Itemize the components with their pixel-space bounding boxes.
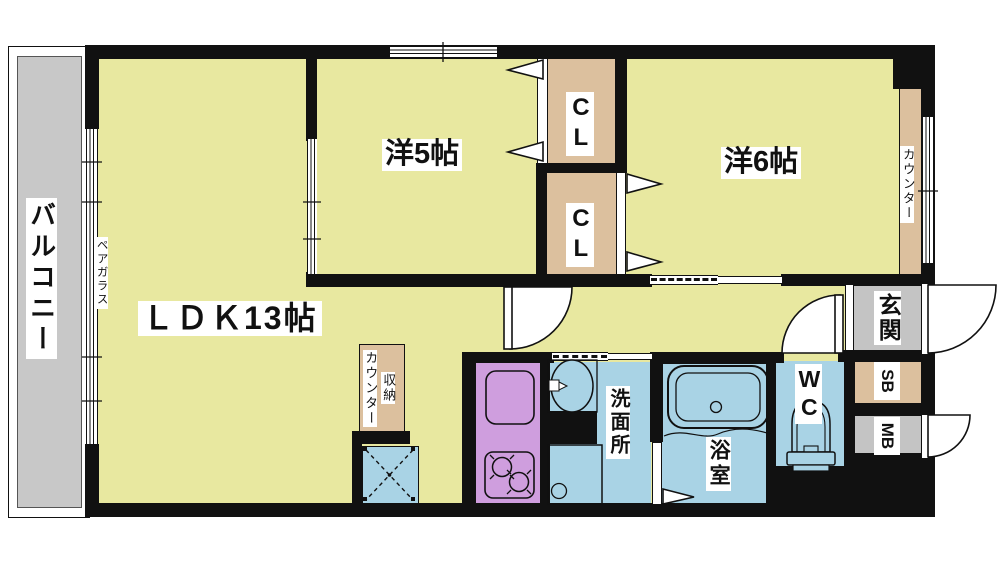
window [307, 139, 317, 274]
bathroom-label: 浴室 [706, 437, 731, 491]
wall-segment [536, 163, 547, 275]
entrance-step [845, 284, 854, 351]
storage-counter-label: カウンター [363, 350, 377, 427]
entrance-label: 玄関 [874, 291, 901, 345]
balcony-label: バルコニー [26, 198, 57, 359]
wall-segment [85, 45, 99, 129]
washroom-counter-block [546, 411, 597, 444]
closet-sliding-door [616, 172, 626, 275]
door-arc-meterbox [928, 415, 970, 457]
window [922, 117, 934, 263]
wall-segment [650, 360, 663, 442]
bath-door [652, 442, 662, 505]
wall-segment [306, 45, 317, 141]
pair-glass-label: ペアガラス [95, 237, 108, 309]
closet-sliding-door [537, 58, 548, 164]
washroom-label: 洗面所 [606, 386, 630, 459]
window [390, 46, 497, 58]
sliding-door-panel [650, 275, 718, 285]
sliding-door-track [608, 353, 652, 360]
western-room-5-label: 洋5帖 [382, 139, 462, 171]
sliding-door-panel [552, 352, 608, 361]
meterbox-door-leaf [921, 414, 929, 459]
counter-wall-bar [352, 431, 362, 503]
under-floor-hatch [362, 446, 419, 505]
door-arc-entrance [928, 285, 996, 353]
floor-plan: バルコニー ペアガラス ＬＤＫ13帖 洋5帖 洋6帖 CL CL カウンター 収… [0, 0, 1000, 562]
wall-segment [921, 456, 935, 517]
wall-segment [462, 352, 476, 508]
wall-segment [306, 274, 652, 287]
shoe-box-label: SB [874, 362, 900, 400]
closet-bottom-label: CL [566, 203, 594, 267]
closet-top-label: CL [566, 92, 594, 156]
meter-box-label: MB [874, 417, 900, 455]
wall-segment [781, 274, 935, 286]
wall-segment [536, 163, 627, 173]
wall-segment [615, 45, 627, 165]
wall-segment [85, 45, 935, 59]
ldk-label: ＬＤＫ13帖 [138, 301, 322, 336]
entrance-door-leaf [921, 283, 929, 355]
sliding-door-track [718, 276, 782, 284]
wall-segment [650, 352, 774, 364]
kitchen-floor [476, 362, 541, 504]
wall-segment [921, 350, 935, 416]
western-room-6-label: 洋6帖 [721, 147, 801, 179]
storage-label: 収納 [381, 372, 395, 404]
toilet-label: WC [795, 364, 822, 424]
wall-segment [766, 466, 856, 517]
counter-right-label: カウンター [900, 146, 914, 223]
